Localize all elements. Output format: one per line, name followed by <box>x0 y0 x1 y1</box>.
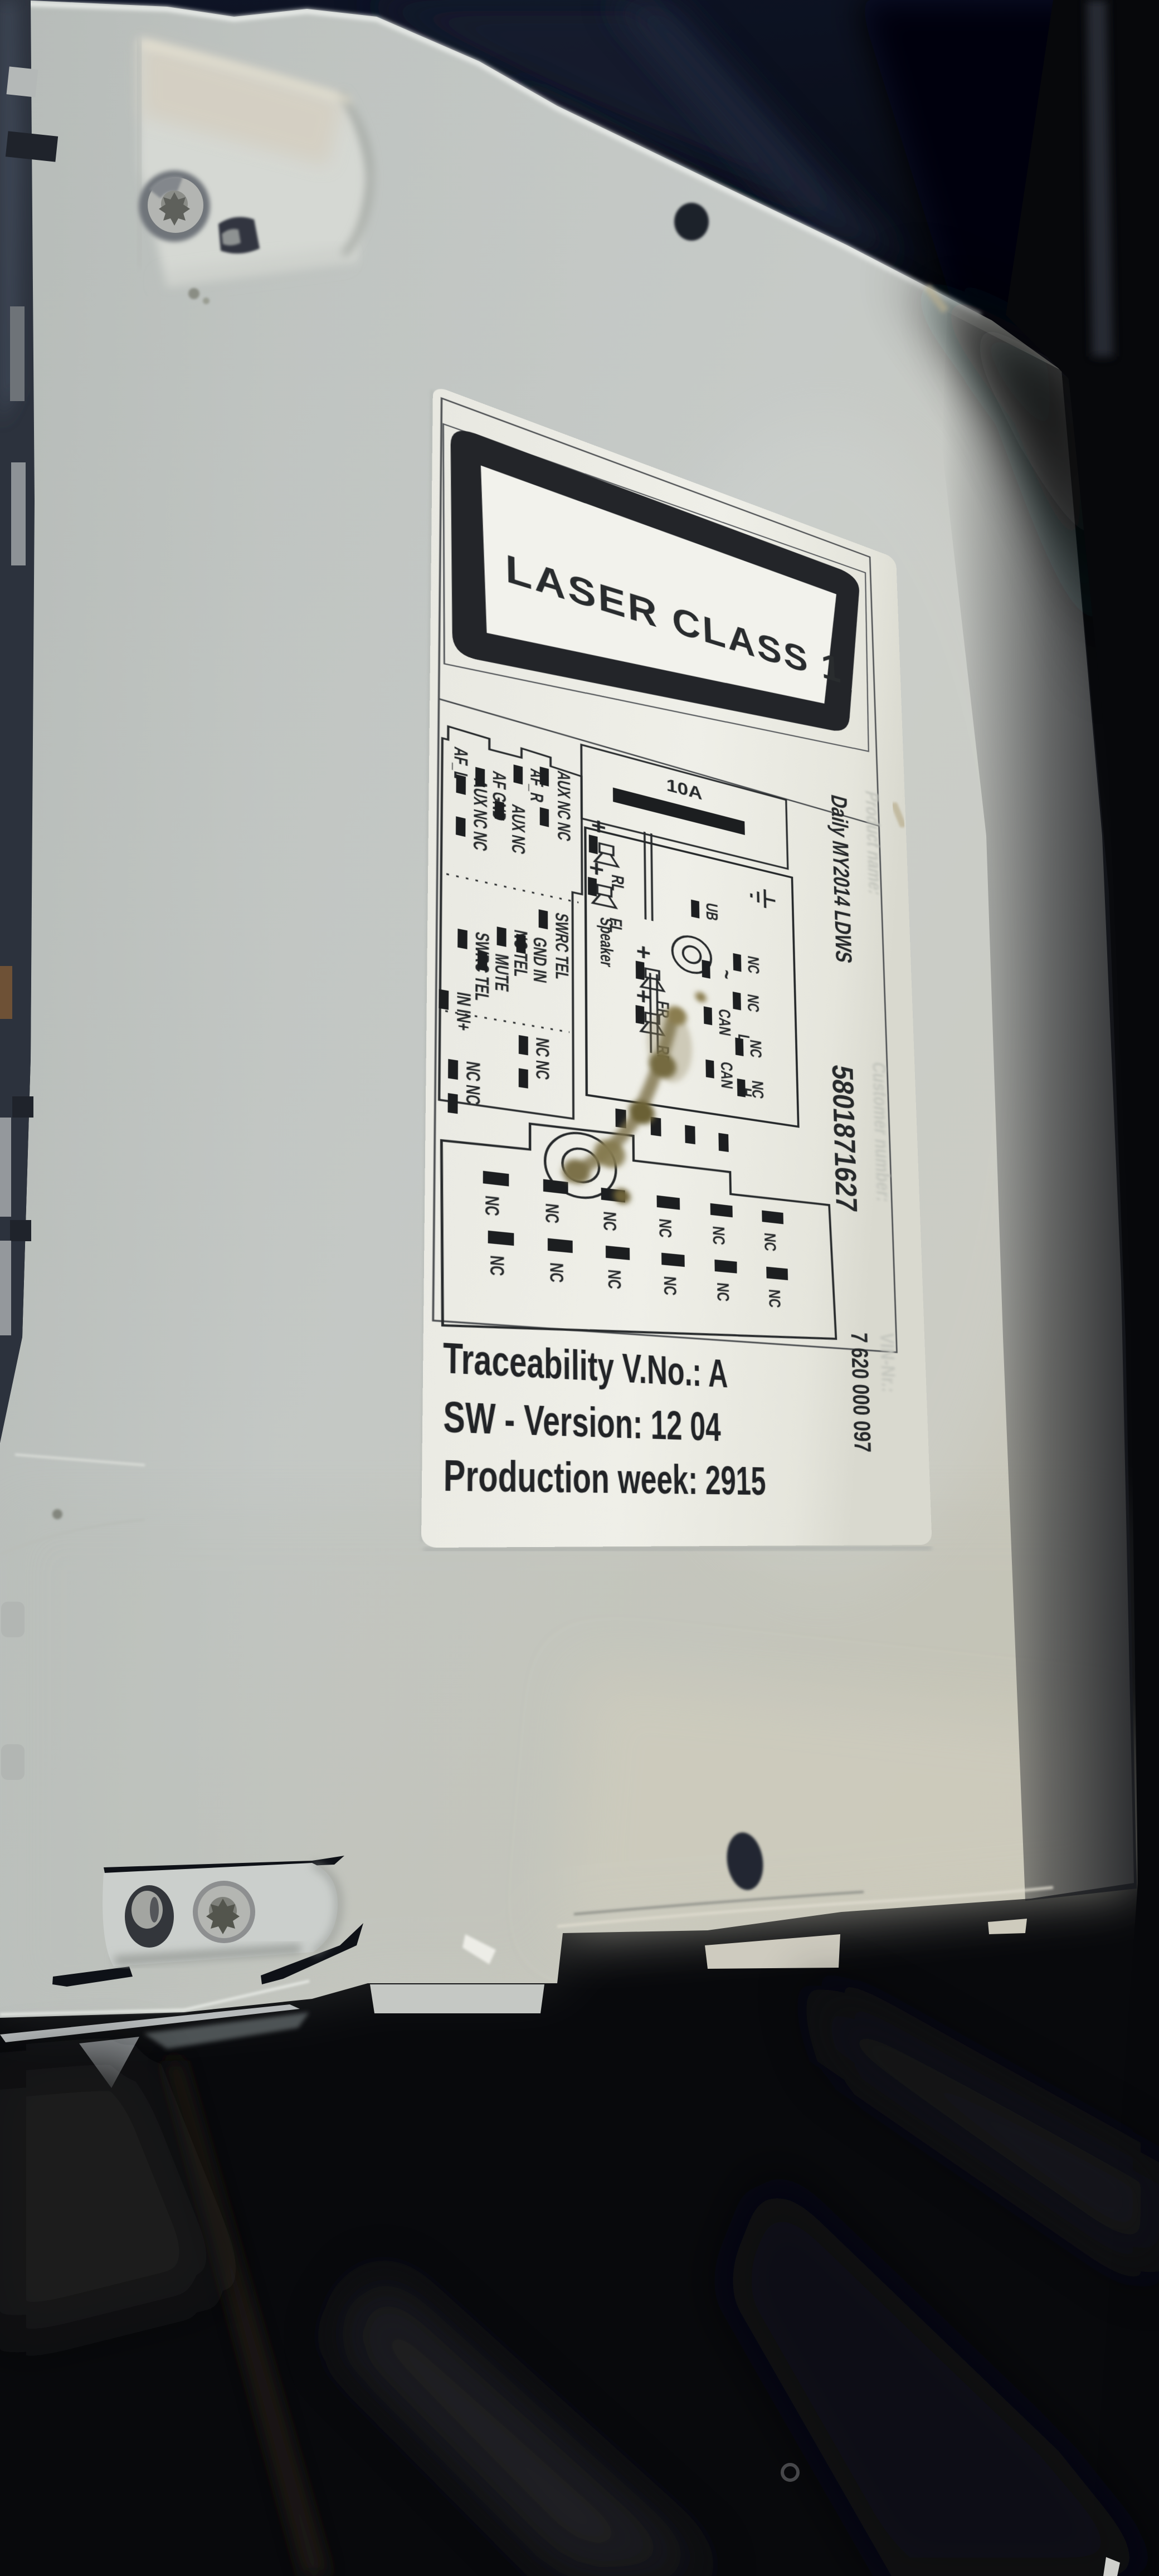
svg-text:NC NC: NC NC <box>532 1036 552 1081</box>
svg-text:+: + <box>589 855 604 884</box>
svg-text:NC: NC <box>481 1194 503 1217</box>
svg-text:Production week: 2915: Production week: 2915 <box>443 1451 766 1504</box>
svg-text:Daily MY2014 LDWS: Daily MY2014 LDWS <box>826 792 856 965</box>
svg-text:NC: NC <box>486 1255 508 1277</box>
svg-text:Customer number:: Customer number: <box>868 1060 894 1203</box>
svg-text:NC: NC <box>761 1232 779 1252</box>
svg-text:7 620 000 097: 7 620 000 097 <box>846 1331 876 1453</box>
svg-text:NC: NC <box>744 993 762 1013</box>
svg-text:NC: NC <box>744 954 762 975</box>
svg-text:Product name:: Product name: <box>861 789 886 898</box>
svg-text:NC: NC <box>604 1269 624 1290</box>
svg-text:GND IN: GND IN <box>529 935 550 984</box>
svg-text:CAN: CAN <box>717 1060 736 1090</box>
svg-text:NC: NC <box>660 1276 679 1296</box>
svg-text:+: + <box>636 982 651 1011</box>
svg-text:NC: NC <box>765 1289 783 1309</box>
svg-text:NC: NC <box>546 1262 567 1284</box>
svg-text:NC: NC <box>655 1218 675 1238</box>
svg-text:MUTE: MUTE <box>491 952 512 993</box>
svg-text:IN IN+: IN IN+ <box>452 991 475 1033</box>
svg-text:5801871627: 5801871627 <box>826 1062 864 1213</box>
svg-text:AUX NC NC: AUX NC NC <box>469 777 491 853</box>
svg-text:NC NC: NC NC <box>461 1060 484 1106</box>
svg-text:SWRC TEL: SWRC TEL <box>551 911 572 982</box>
svg-text:+: + <box>591 812 606 841</box>
svg-text:NC: NC <box>709 1226 728 1246</box>
svg-text:AUX NC: AUX NC <box>508 803 528 856</box>
svg-text:CAN: CAN <box>715 1007 733 1037</box>
svg-text:NC: NC <box>541 1203 562 1224</box>
svg-text:AUX NC NC: AUX NC NC <box>553 769 573 843</box>
svg-text:VIN-Nr.:: VIN-Nr.: <box>876 1332 900 1393</box>
svg-text:NC: NC <box>713 1282 732 1302</box>
svg-text:NC: NC <box>748 1079 767 1100</box>
svg-text:+: + <box>636 938 651 967</box>
svg-text:NC: NC <box>746 1038 764 1059</box>
svg-text:NC: NC <box>599 1211 619 1232</box>
